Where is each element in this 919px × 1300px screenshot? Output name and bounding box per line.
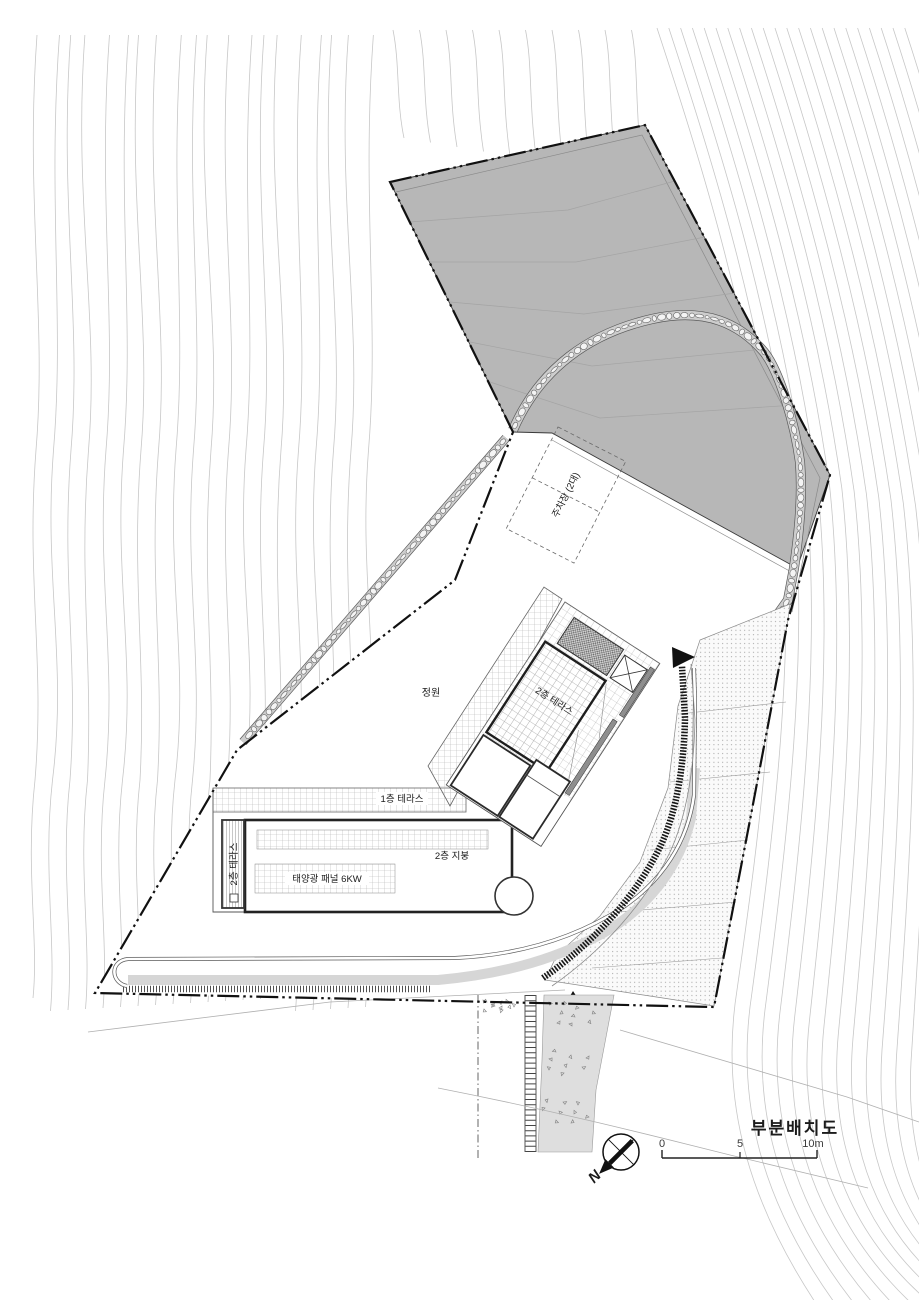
roof-round-bay <box>495 877 533 915</box>
wall-stone <box>798 463 803 471</box>
contour-line <box>420 30 431 143</box>
wall-stone <box>791 562 797 569</box>
scale-tick-0: 0 <box>659 1138 665 1150</box>
contour-line <box>135 35 144 1006</box>
wall-stone <box>797 510 803 516</box>
drawing-title: 부분배치도 <box>751 1119 839 1138</box>
garden-label: 정원 <box>422 687 440 699</box>
wall-stone <box>681 312 688 318</box>
contour-line <box>473 30 484 152</box>
terrace-1f-label: 1층 테라스 <box>381 794 424 805</box>
north-compass: N <box>585 1127 646 1187</box>
site-plan-page: 주차장 (2대) 정원 1층 테라스 2층 지붕 <box>0 0 919 1300</box>
contour-line <box>799 28 919 1300</box>
contour-line <box>763 28 919 1300</box>
wall-stone <box>797 494 804 502</box>
contour-line <box>775 28 919 1300</box>
contour-line <box>526 30 537 161</box>
terrace-2f-left-label: 2층 테라스 <box>229 842 240 885</box>
wall-stone <box>798 456 802 463</box>
contour-line <box>499 30 510 156</box>
steps-ladder <box>525 995 536 1152</box>
wall-stone <box>793 555 799 561</box>
texture-mark <box>508 1005 512 1010</box>
wall-stone <box>795 541 799 546</box>
wall-stone <box>798 488 804 493</box>
roof-2f-label: 2층 지붕 <box>435 851 469 862</box>
wall-stone <box>673 312 680 318</box>
road-surface <box>538 995 614 1152</box>
wall-stone <box>793 435 798 440</box>
solar-label: 태양광 패널 6KW <box>292 873 362 885</box>
scale-bar: 0 5 10m <box>659 1138 824 1158</box>
contour-line <box>446 30 457 147</box>
wall-stone <box>797 502 803 508</box>
contour-line <box>119 35 129 1007</box>
south-road <box>478 995 614 1160</box>
contour-line <box>31 35 39 998</box>
wall-stone <box>798 478 804 487</box>
contour-line <box>49 35 60 1011</box>
scale-tick-10: 10m <box>802 1138 823 1150</box>
contour-line <box>905 28 919 1300</box>
contour-line <box>393 30 404 138</box>
wall-stone <box>798 473 803 478</box>
solar-strip-1 <box>257 830 488 849</box>
contour-line <box>834 28 919 1300</box>
contour-line <box>101 35 109 1008</box>
wall-stone <box>689 313 694 318</box>
strip-notch <box>230 894 238 902</box>
terrace-1f-band <box>213 788 466 812</box>
wall-stone <box>666 313 672 320</box>
wall-stone <box>797 526 801 531</box>
contour-line <box>810 28 919 1300</box>
contour-line <box>66 35 74 1010</box>
site-plan-drawing: 주차장 (2대) 정원 1층 테라스 2층 지붕 <box>0 0 919 1300</box>
texture-mark <box>499 1009 503 1013</box>
scale-tick-5: 5 <box>737 1138 743 1150</box>
wall-stone <box>797 516 802 524</box>
texture-mark <box>499 1005 503 1009</box>
contour-line <box>153 35 161 1005</box>
texture-mark <box>483 1009 487 1013</box>
contour-line <box>82 35 92 1009</box>
